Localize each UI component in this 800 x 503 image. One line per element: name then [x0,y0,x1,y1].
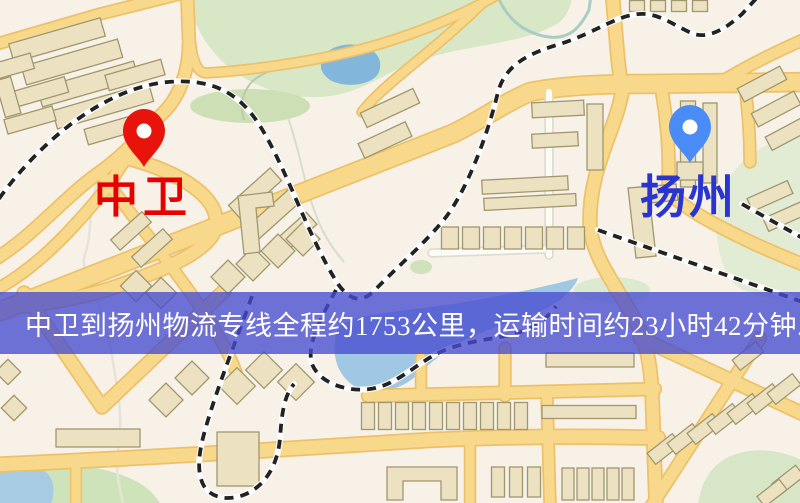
route-info-banner: 中卫到扬州物流专线全程约1753公里，运输时间约23小时42分钟. [0,292,800,354]
origin-city-label: 中卫 [94,176,192,220]
logistics-route-map: 中卫 扬州 中卫到扬州物流专线全程约1753公里，运输时间约23小时42分钟. [0,0,800,503]
route-summary-text: 中卫到扬州物流专线全程约1753公里，运输时间约23小时42分钟. [25,304,800,343]
map-image [0,0,800,503]
destination-city-label: 扬州 [640,175,736,221]
destination-pin-icon[interactable] [668,103,712,165]
origin-pin-icon[interactable] [122,107,166,169]
